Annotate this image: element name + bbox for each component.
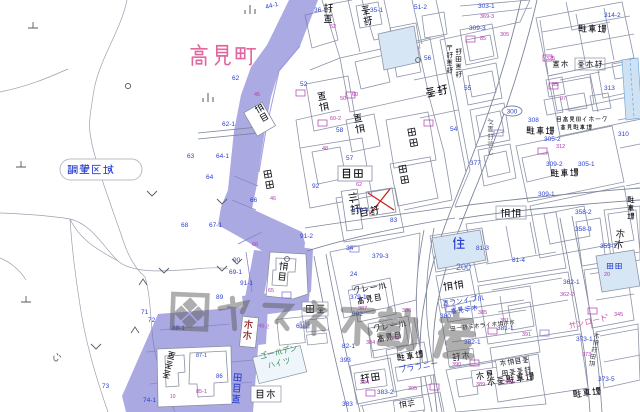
svg-text:358-3: 358-3 [575, 226, 592, 233]
svg-text:48: 48 [322, 146, 328, 152]
svg-text:312: 312 [556, 144, 565, 150]
svg-text:90: 90 [233, 257, 241, 264]
svg-text:69-1: 69-1 [229, 269, 242, 276]
svg-text:72: 72 [148, 317, 156, 324]
svg-text:305: 305 [500, 32, 509, 38]
svg-text:74-1: 74-1 [143, 397, 156, 404]
svg-text:379-3: 379-3 [372, 253, 389, 260]
svg-text:58: 58 [336, 127, 344, 134]
svg-text:390: 390 [452, 362, 461, 368]
svg-text:309-1: 309-1 [538, 191, 555, 198]
svg-text:54: 54 [450, 126, 458, 133]
svg-text:62-1: 62-1 [222, 121, 235, 128]
svg-text:391: 391 [522, 332, 531, 338]
svg-text:373-1: 373-1 [576, 336, 593, 343]
svg-text:305-2: 305-2 [544, 136, 561, 143]
svg-text:24: 24 [350, 271, 358, 278]
svg-text:314-2: 314-2 [604, 12, 621, 19]
svg-text:362-2: 362-2 [560, 292, 574, 298]
svg-text:384: 384 [366, 340, 375, 346]
svg-text:310: 310 [618, 131, 629, 138]
svg-text:381: 381 [500, 318, 509, 324]
svg-text:92: 92 [312, 183, 320, 190]
svg-text:373-5: 373-5 [598, 376, 615, 383]
svg-text:97: 97 [560, 96, 566, 102]
svg-text:82-1: 82-1 [342, 343, 355, 350]
svg-text:309-2: 309-2 [546, 161, 563, 168]
svg-text:308: 308 [528, 117, 539, 124]
svg-text:394: 394 [360, 380, 369, 386]
svg-text:379-1: 379-1 [350, 294, 367, 301]
svg-text:358-2: 358-2 [575, 209, 592, 216]
svg-text:300: 300 [507, 109, 518, 116]
svg-text:388: 388 [504, 380, 513, 386]
svg-text:66: 66 [250, 197, 258, 204]
svg-text:55: 55 [464, 85, 472, 92]
svg-text:89: 89 [216, 294, 224, 301]
svg-text:20: 20 [604, 272, 610, 278]
svg-text:200: 200 [456, 262, 471, 272]
svg-text:35-1: 35-1 [370, 7, 383, 14]
svg-text:45: 45 [254, 92, 260, 98]
svg-text:62: 62 [356, 182, 362, 188]
svg-text:10: 10 [170, 394, 176, 400]
svg-text:313: 313 [604, 85, 615, 92]
svg-text:52: 52 [300, 81, 308, 88]
svg-text:377: 377 [470, 160, 481, 167]
svg-text:51-2: 51-2 [414, 4, 427, 11]
svg-text:56: 56 [424, 55, 432, 62]
svg-text:345: 345 [614, 312, 623, 318]
svg-text:68: 68 [181, 222, 189, 229]
svg-text:393: 393 [340, 357, 351, 364]
svg-text:389: 389 [476, 382, 485, 388]
svg-text:309-3: 309-3 [469, 25, 486, 32]
svg-text:355-1: 355-1 [600, 243, 617, 250]
svg-text:383: 383 [342, 401, 353, 408]
svg-text:85: 85 [480, 36, 486, 42]
svg-text:36: 36 [314, 7, 322, 14]
svg-text:46: 46 [270, 196, 276, 202]
svg-text:83: 83 [390, 217, 398, 224]
svg-text:73: 73 [102, 383, 110, 390]
svg-text:50: 50 [340, 96, 346, 102]
svg-text:65: 65 [268, 288, 274, 294]
svg-text:66: 66 [252, 242, 258, 248]
svg-text:91-1: 91-1 [240, 280, 253, 287]
svg-text:52: 52 [330, 24, 336, 30]
svg-text:362-1: 362-1 [563, 279, 580, 286]
svg-text:385: 385 [478, 310, 487, 316]
svg-text:64: 64 [206, 174, 214, 181]
svg-text:86: 86 [216, 374, 223, 380]
svg-text:62: 62 [232, 75, 240, 82]
svg-text:395: 395 [408, 386, 417, 392]
svg-text:81-4: 81-4 [512, 257, 525, 264]
svg-text:379-4: 379-4 [352, 207, 369, 214]
svg-text:71: 71 [141, 309, 149, 316]
svg-text:81-3: 81-3 [476, 245, 489, 252]
svg-text:87-1: 87-1 [196, 353, 207, 359]
svg-text:67-1: 67-1 [209, 222, 222, 229]
svg-text:57: 57 [346, 155, 354, 162]
svg-text:305-1: 305-1 [578, 161, 595, 168]
svg-text:383-2: 383-2 [377, 389, 394, 396]
svg-text:369-3: 369-3 [480, 14, 494, 20]
svg-text:381-1: 381-1 [497, 325, 514, 332]
svg-text:85-1: 85-1 [196, 389, 207, 395]
svg-text:64-1: 64-1 [216, 153, 229, 160]
svg-text:63: 63 [187, 153, 195, 160]
svg-text:60-2: 60-2 [330, 116, 341, 122]
svg-text:91-2: 91-2 [300, 233, 313, 240]
svg-text:303-1: 303-1 [478, 3, 495, 10]
svg-text:373: 373 [582, 352, 591, 358]
